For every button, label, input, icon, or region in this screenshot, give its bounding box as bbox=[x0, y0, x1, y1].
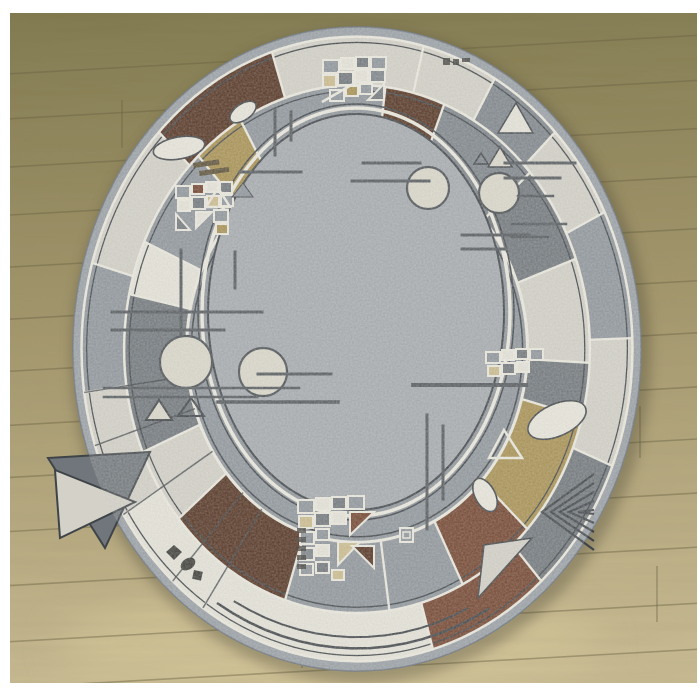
page-background bbox=[0, 0, 700, 700]
product-photo bbox=[0, 0, 700, 700]
rug-texture bbox=[73, 27, 641, 671]
rug-speckle-dark-texture bbox=[73, 27, 641, 671]
